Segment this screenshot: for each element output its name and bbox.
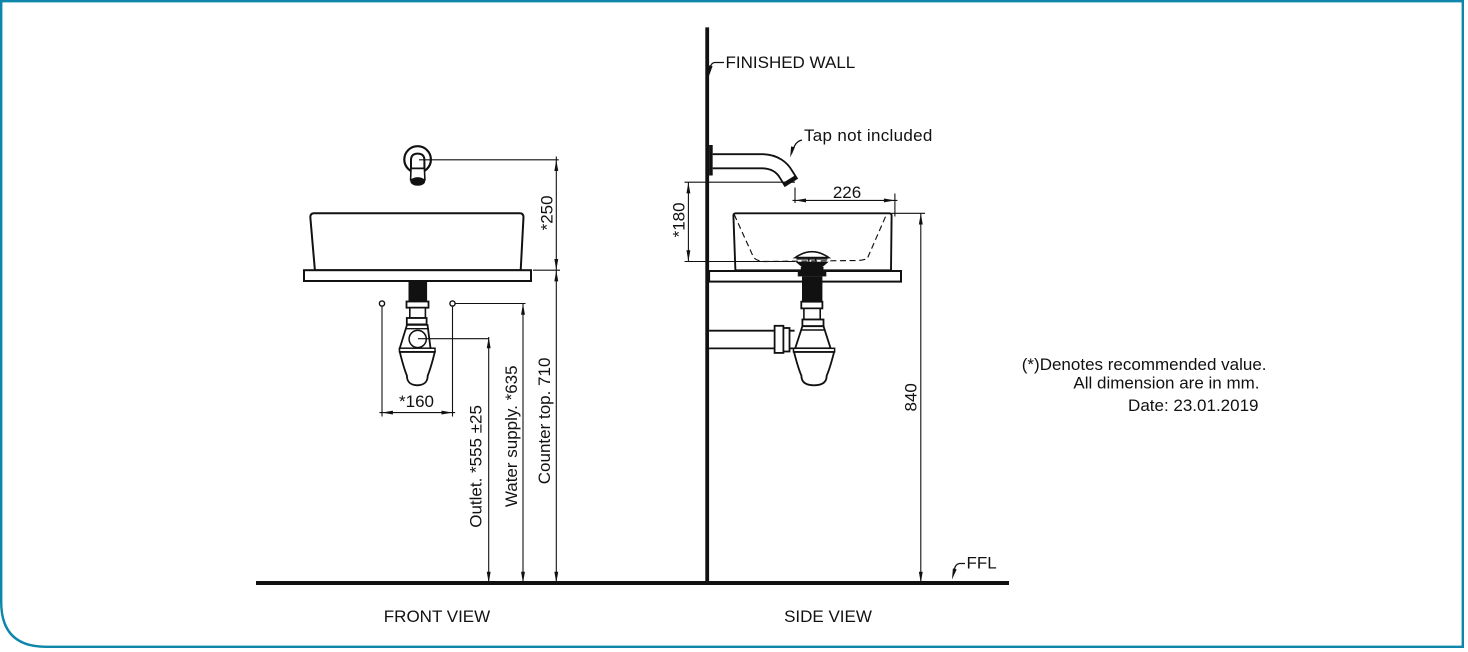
svg-text:Date: 23.01.2019: Date: 23.01.2019 [1128,396,1258,415]
svg-text:Counter top. 710: Counter top. 710 [535,358,554,485]
svg-text:*250: *250 [538,195,557,230]
svg-text:FINISHED WALL: FINISHED WALL [726,53,856,72]
svg-text:Tap not included: Tap not included [804,126,933,145]
svg-text:226: 226 [833,183,861,202]
svg-text:(*)Denotes recommended value.: (*)Denotes recommended value. [1022,355,1267,374]
svg-text:All dimension are in mm.: All dimension are in mm. [1073,373,1259,392]
svg-text:FFL: FFL [967,554,997,573]
svg-text:FRONT VIEW: FRONT VIEW [384,607,490,626]
svg-text:Water supply. *635: Water supply. *635 [502,365,521,507]
svg-text:840: 840 [901,383,920,411]
svg-text:*180: *180 [670,202,689,237]
svg-text:Outlet. *555 ±25: Outlet. *555 ±25 [466,405,485,528]
svg-text:*160: *160 [399,392,434,411]
svg-text:SIDE VIEW: SIDE VIEW [784,607,872,626]
